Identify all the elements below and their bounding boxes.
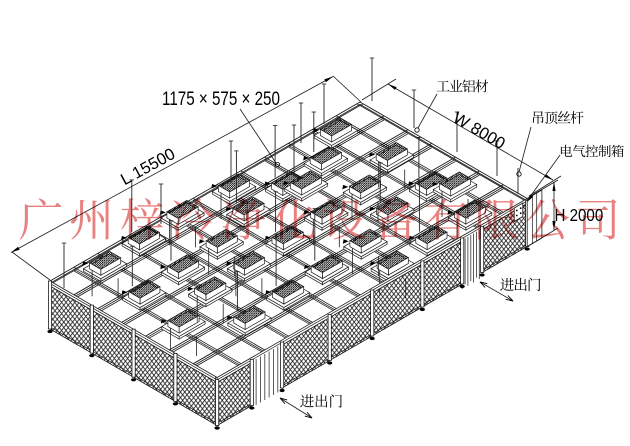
svg-text:1175 × 575 × 250: 1175 × 575 × 250 xyxy=(162,87,280,109)
